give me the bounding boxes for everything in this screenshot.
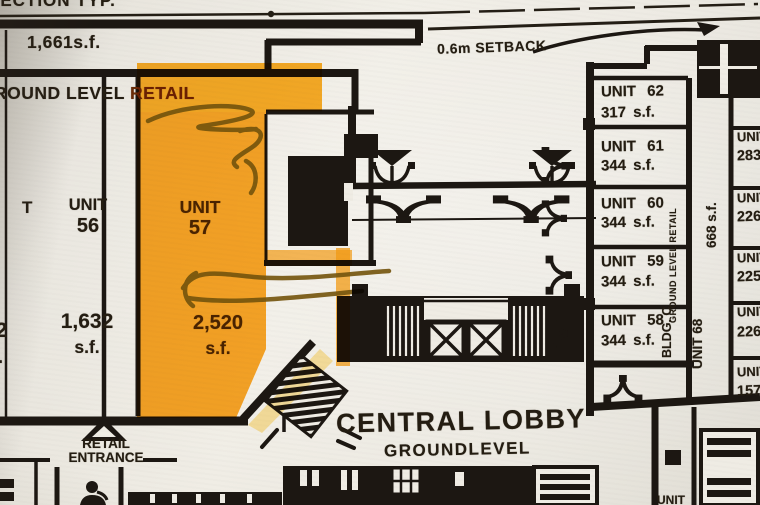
highlighter-overlay (0, 0, 760, 505)
floor-plan-photo: SECTION TYP. 1,661s.f. ROUND LEVEL RETAI… (0, 0, 760, 505)
